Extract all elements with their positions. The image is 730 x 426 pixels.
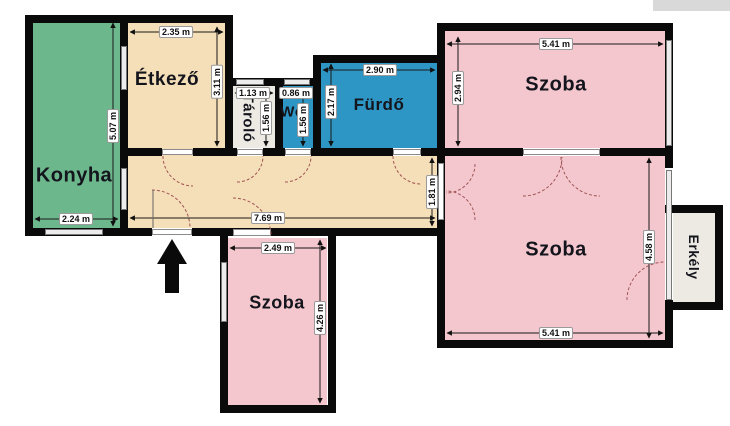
dim-furdo-height: 2.17 m [325,85,337,119]
dim-tarolo-width: 1.13 m [236,87,270,99]
dim-wc-width: 0.86 m [279,87,313,99]
label-tarolo: Tároló [240,94,257,143]
dim-szoba-nagy-height: 4.58 m [643,230,655,264]
dim-furdo-width: 2.90 m [363,64,397,76]
entrance-arrow-icon [157,239,187,293]
label-szoba-felso: Szoba [525,74,586,97]
dim-hallway-width: 7.69 m [251,212,285,224]
dim-konyha-height: 5.07 m [107,109,119,143]
dim-wc-height: 1.56 m [297,103,309,137]
dim-szoba-felso-width: 5.41 m [539,38,573,50]
label-etkezo: Étkező [135,69,199,91]
label-furdo: Fürdő [354,95,405,115]
dim-tarolo-height: 1.56 m [260,101,272,135]
door-swing-arcs [152,156,665,300]
dim-szoba-nagy-width: 5.41 m [539,327,573,339]
dim-hallway-height: 1.81 m [426,175,438,209]
dim-etkezo-width: 2.35 m [159,26,193,38]
dim-szoba-felso-height: 2.94 m [452,71,464,105]
dim-etkezo-height: 3.11 m [211,65,223,99]
dim-szoba-also-height: 4.26 m [314,301,326,335]
dim-konyha-width: 2.24 m [59,213,93,225]
dim-szoba-also-width: 2.49 m [261,242,295,254]
label-konyha: Konyha [36,165,112,188]
label-erkely: Erkély [686,234,702,279]
label-szoba-also: Szoba [249,293,305,314]
floorplan: Konyha Étkező Tároló Wc Fürdő Szoba Szob… [0,0,730,426]
label-szoba-nagy: Szoba [525,239,586,262]
